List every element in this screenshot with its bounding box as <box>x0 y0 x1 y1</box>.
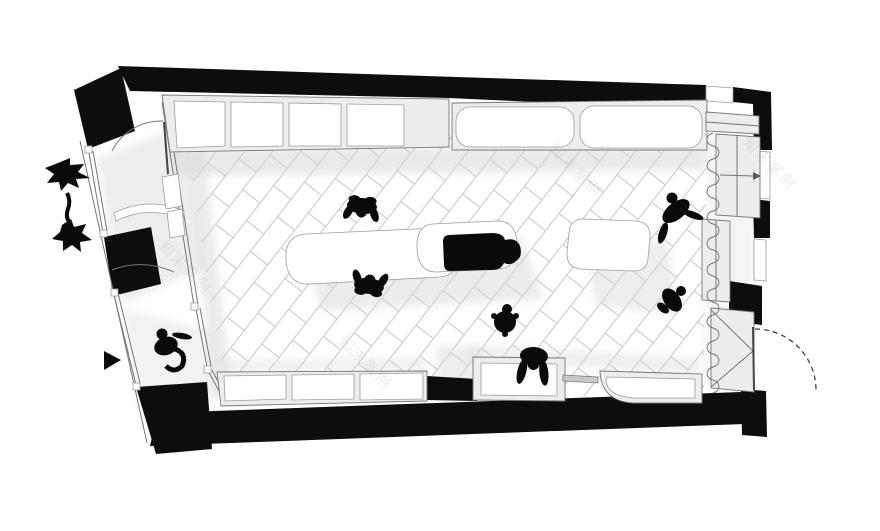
top-cabinet-row <box>162 95 449 152</box>
side-table <box>567 219 650 271</box>
entry-marker-triangle <box>104 351 121 370</box>
wall-unit-1 <box>162 174 182 209</box>
corner-counter <box>600 371 702 403</box>
entrance-door-right <box>753 327 816 390</box>
folded-unit <box>711 308 754 392</box>
floor-plan-canvas: 知末案例 知末案例 知末案例 知末案例 <box>0 0 880 531</box>
window-gap-top <box>706 86 733 103</box>
bottom-display-case <box>217 371 427 406</box>
window-bench <box>452 100 707 150</box>
wall-bottom-notch <box>427 376 477 401</box>
wall-unit-2 <box>167 209 185 238</box>
door-leaf-right <box>753 327 754 390</box>
window-gap-right-2 <box>754 239 766 281</box>
street-tree <box>45 158 92 252</box>
door-swing-dashed <box>755 329 816 390</box>
wall-pier-bottom-left <box>136 382 212 454</box>
floor-plan-page: 知末案例 知末案例 知末案例 知末案例 <box>0 0 880 531</box>
wall-pier-bottom-right <box>741 389 767 437</box>
